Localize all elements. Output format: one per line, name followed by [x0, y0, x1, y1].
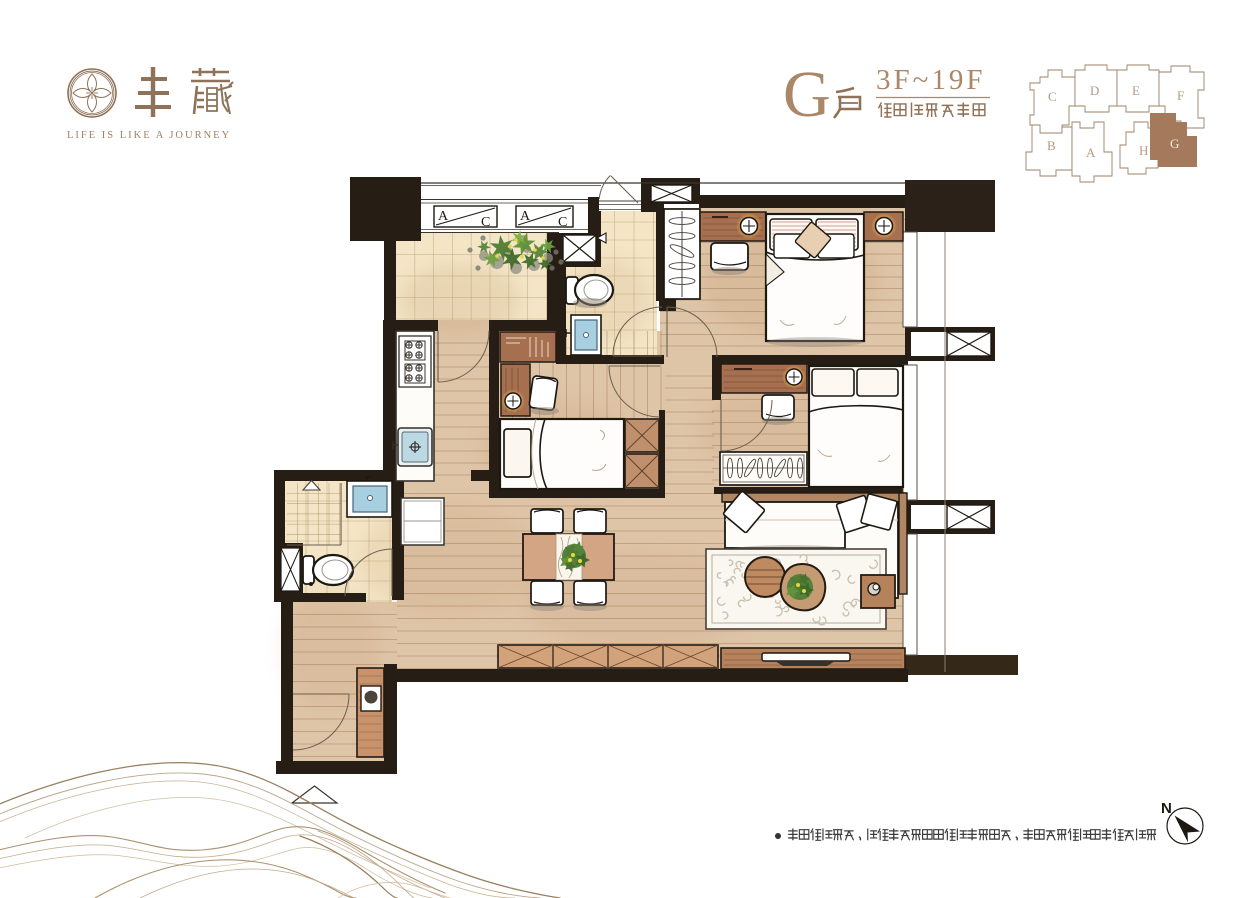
svg-text:C: C [1048, 89, 1057, 104]
svg-text:C: C [558, 215, 567, 230]
svg-text:H: H [1139, 143, 1148, 158]
svg-text:N: N [1161, 800, 1172, 817]
svg-text:B: B [1047, 138, 1056, 153]
svg-text:LIFE IS LIKE A JOURNEY: LIFE IS LIKE A JOURNEY [67, 130, 231, 141]
svg-text:A: A [438, 209, 449, 224]
svg-text:A: A [520, 209, 531, 224]
svg-text:D: D [1090, 83, 1099, 98]
svg-text:A: A [1086, 145, 1096, 160]
svg-text:C: C [481, 215, 490, 230]
svg-text:G: G [1170, 136, 1179, 151]
svg-text:3F~19F: 3F~19F [876, 64, 985, 96]
svg-text:G: G [783, 58, 831, 131]
svg-text:F: F [1177, 88, 1184, 103]
svg-text:E: E [1132, 83, 1140, 98]
